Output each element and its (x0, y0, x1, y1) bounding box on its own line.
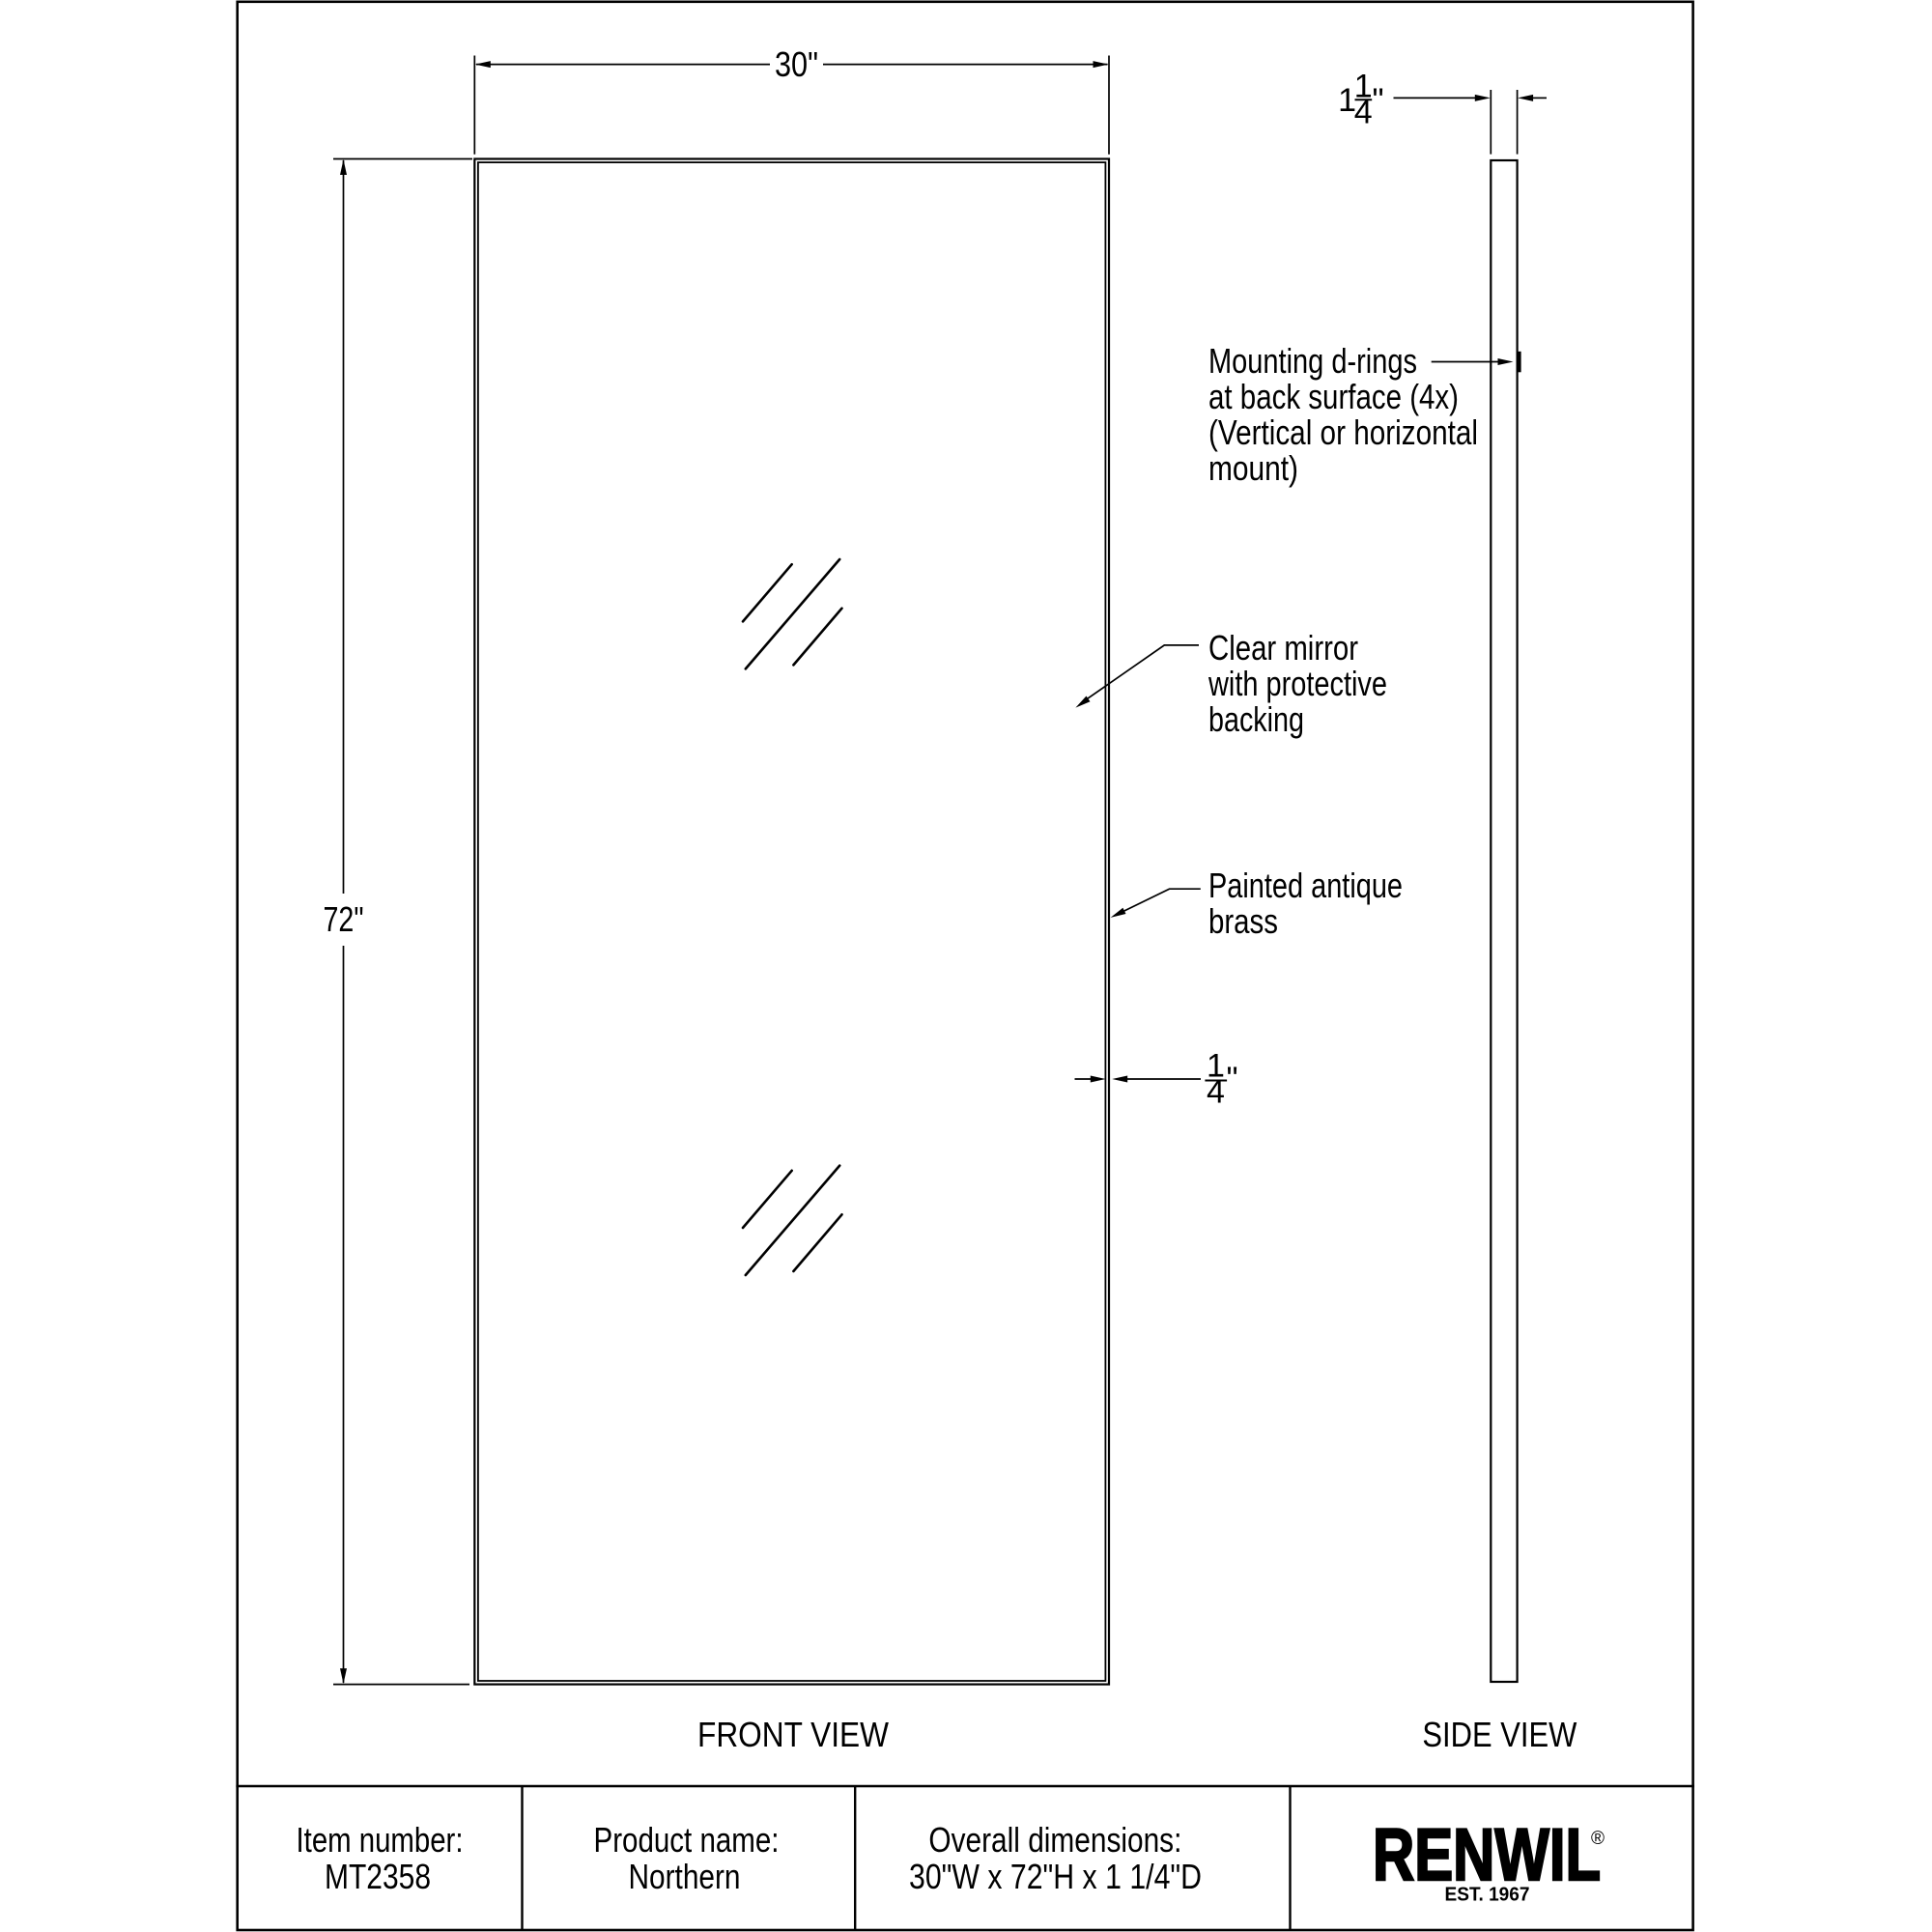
svg-text:®: ® (1591, 1829, 1605, 1849)
svg-text:30"W x 72"H x 1 1/4"D: 30"W x 72"H x 1 1/4"D (909, 1857, 1202, 1896)
svg-text:with protective: with protective (1207, 664, 1387, 703)
svg-text:30": 30" (775, 44, 818, 84)
svg-text:Product name:: Product name: (594, 1820, 780, 1860)
svg-text:Item number:: Item number: (297, 1820, 464, 1860)
svg-text:FRONT VIEW: FRONT VIEW (697, 1715, 889, 1754)
svg-text:backing: backing (1208, 699, 1304, 739)
svg-text:mount): mount) (1208, 448, 1298, 488)
svg-text:72": 72" (324, 899, 364, 939)
svg-text:brass: brass (1208, 901, 1278, 941)
svg-text:Overall dimensions:: Overall dimensions: (928, 1820, 1181, 1860)
svg-text:4: 4 (1207, 1073, 1225, 1110)
svg-text:(Vertical or horizontal: (Vertical or horizontal (1208, 412, 1478, 452)
svg-text:Painted antique: Painted antique (1208, 866, 1403, 905)
svg-text:Clear mirror: Clear mirror (1208, 628, 1358, 668)
svg-text:Mounting d-rings: Mounting d-rings (1208, 341, 1417, 381)
svg-text:at back surface (4x): at back surface (4x) (1208, 377, 1459, 416)
svg-text:": " (1373, 82, 1384, 119)
svg-text:": " (1227, 1061, 1238, 1097)
svg-text:EST. 1967: EST. 1967 (1445, 1885, 1530, 1906)
svg-text:Northern: Northern (629, 1857, 741, 1896)
svg-text:MT2358: MT2358 (325, 1857, 431, 1896)
svg-text:SIDE VIEW: SIDE VIEW (1422, 1715, 1577, 1754)
